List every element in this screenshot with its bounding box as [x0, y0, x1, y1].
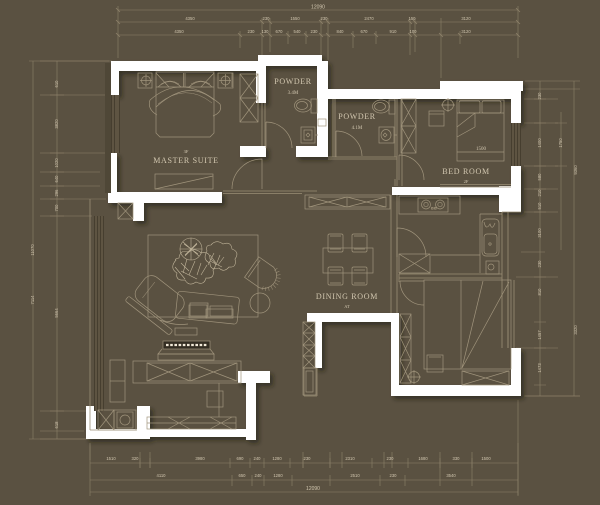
svg-text:DINING ROOM: DINING ROOM — [316, 292, 378, 301]
svg-text:1510: 1510 — [106, 456, 116, 461]
svg-text:540: 540 — [294, 29, 302, 34]
svg-text:230: 230 — [248, 29, 256, 34]
svg-text:670: 670 — [361, 29, 369, 34]
svg-text:2310: 2310 — [345, 456, 355, 461]
svg-text:100: 100 — [410, 29, 418, 34]
svg-text:3100: 3100 — [537, 228, 542, 238]
svg-text:1020: 1020 — [54, 158, 59, 168]
svg-text:12090: 12090 — [311, 5, 325, 11]
svg-text:230: 230 — [304, 456, 312, 461]
svg-text:910: 910 — [390, 29, 398, 34]
svg-text:240: 240 — [254, 456, 262, 461]
svg-text:230: 230 — [537, 92, 542, 100]
svg-text:POWDER: POWDER — [338, 112, 375, 121]
svg-text:1457: 1457 — [537, 330, 542, 340]
svg-text:2510: 2510 — [350, 473, 360, 478]
svg-text:240: 240 — [255, 473, 263, 478]
svg-text:610: 610 — [54, 80, 59, 88]
svg-text:4.1M: 4.1M — [352, 126, 363, 131]
svg-text:1500: 1500 — [476, 147, 487, 152]
svg-text:4350: 4350 — [185, 16, 195, 21]
svg-text:3.4M: 3.4M — [288, 91, 299, 96]
svg-text:1680: 1680 — [418, 456, 428, 461]
svg-text:3320: 3320 — [573, 325, 578, 335]
svg-text:3820: 3820 — [54, 119, 59, 129]
svg-text:840: 840 — [337, 29, 345, 34]
svg-text:230: 230 — [537, 260, 542, 268]
svg-text:9360: 9360 — [573, 165, 578, 175]
svg-text:5664: 5664 — [54, 308, 59, 318]
svg-text:640: 640 — [54, 175, 59, 183]
svg-text:230: 230 — [321, 16, 329, 21]
svg-text:2F: 2F — [464, 179, 469, 184]
svg-text:1280: 1280 — [272, 456, 282, 461]
svg-text:150: 150 — [409, 16, 417, 21]
svg-text:670: 670 — [276, 29, 284, 34]
svg-text:3540: 3540 — [446, 473, 456, 478]
svg-text:1750: 1750 — [558, 138, 563, 148]
svg-text:510: 510 — [537, 202, 542, 210]
svg-text:690: 690 — [237, 456, 245, 461]
svg-text:2470: 2470 — [364, 16, 374, 21]
svg-text:230: 230 — [387, 456, 395, 461]
svg-text:810: 810 — [537, 288, 542, 296]
svg-text:1280: 1280 — [273, 473, 283, 478]
svg-text:1500: 1500 — [481, 456, 491, 461]
svg-text:650: 650 — [239, 473, 247, 478]
svg-text:130: 130 — [262, 29, 270, 34]
svg-text:3120: 3120 — [461, 29, 471, 34]
svg-text:296: 296 — [54, 189, 59, 197]
svg-text:3F: 3F — [184, 149, 189, 154]
svg-text:210: 210 — [537, 189, 542, 197]
svg-text:580: 580 — [537, 173, 542, 181]
svg-text:POWDER: POWDER — [274, 77, 311, 86]
svg-text:230: 230 — [311, 29, 319, 34]
svg-text:1550: 1550 — [290, 16, 300, 21]
svg-text:700: 700 — [54, 204, 59, 212]
svg-text:11070: 11070 — [30, 244, 35, 256]
svg-text:230: 230 — [390, 473, 398, 478]
svg-text:618: 618 — [54, 421, 59, 429]
svg-text:12090: 12090 — [306, 486, 320, 492]
svg-text:4350: 4350 — [174, 29, 184, 34]
svg-text:230: 230 — [263, 16, 271, 21]
svg-text:7114: 7114 — [30, 295, 35, 305]
svg-text:MASTER SUITE: MASTER SUITE — [153, 156, 219, 165]
svg-text:3120: 3120 — [461, 16, 471, 21]
svg-text:320: 320 — [132, 456, 140, 461]
svg-text:BED ROOM: BED ROOM — [442, 167, 490, 176]
svg-text:AT: AT — [344, 304, 350, 309]
svg-text:4110: 4110 — [156, 473, 166, 478]
svg-text:3980: 3980 — [195, 456, 205, 461]
svg-text:330: 330 — [453, 456, 461, 461]
svg-text:1400: 1400 — [537, 138, 542, 148]
svg-text:1473: 1473 — [537, 363, 542, 373]
